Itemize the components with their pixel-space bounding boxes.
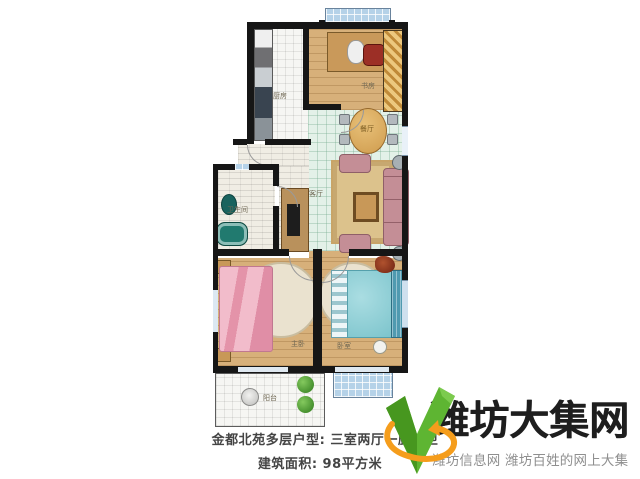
dining-chair bbox=[339, 134, 350, 145]
kitchen-counter bbox=[254, 29, 273, 141]
room-label-master-bedroom: 主卧 bbox=[291, 340, 305, 348]
balcony-door-window bbox=[238, 367, 288, 372]
bathtub bbox=[216, 222, 248, 246]
screenshot-canvas: 厨房 书房 餐厅 客厅 卫生间 主卧 卧室 阳台 金都北苑多层户型: 三室两厅一… bbox=[0, 0, 640, 479]
bedroom-window bbox=[402, 280, 408, 328]
wall bbox=[213, 249, 289, 256]
wall bbox=[273, 164, 279, 186]
checkmark-icon bbox=[378, 384, 460, 479]
floor-lamp bbox=[373, 340, 387, 354]
wall bbox=[309, 104, 341, 110]
wall bbox=[389, 20, 395, 29]
plant-icon bbox=[297, 376, 314, 393]
bed-master bbox=[219, 266, 273, 352]
wall bbox=[319, 20, 325, 29]
room-label-bedroom: 卧室 bbox=[337, 342, 351, 350]
floor-plan: 厨房 书房 餐厅 客厅 卫生间 主卧 卧室 阳台 bbox=[213, 8, 413, 428]
room-label-balcony: 阳台 bbox=[263, 394, 277, 402]
room-label-living: 客厅 bbox=[309, 190, 323, 198]
tv bbox=[287, 204, 300, 236]
wall bbox=[273, 206, 279, 251]
room-label-kitchen: 厨房 bbox=[273, 92, 287, 100]
dining-chair bbox=[387, 114, 398, 125]
wall bbox=[265, 139, 311, 145]
master-window bbox=[213, 290, 218, 332]
wall bbox=[213, 164, 218, 373]
wall bbox=[247, 22, 407, 29]
wall bbox=[313, 249, 322, 373]
flower-pot bbox=[241, 388, 259, 406]
armchair-red bbox=[363, 44, 385, 66]
bathroom-window bbox=[235, 164, 249, 170]
site-tagline: 潍坊信息网 潍坊百姓的网上大集 bbox=[432, 449, 628, 469]
coffee-table bbox=[353, 192, 379, 222]
room-label-study: 书房 bbox=[361, 82, 375, 90]
wall bbox=[349, 249, 408, 256]
room-label-dining: 餐厅 bbox=[360, 125, 374, 133]
wall bbox=[233, 139, 247, 145]
armchair bbox=[339, 154, 371, 173]
dining-chair bbox=[387, 134, 398, 145]
check-shade bbox=[386, 396, 417, 474]
wall bbox=[247, 22, 254, 144]
bed-second bbox=[347, 270, 393, 338]
bay-window-opening bbox=[335, 367, 389, 372]
room-label-bathroom: 卫生间 bbox=[227, 206, 248, 214]
wall bbox=[303, 22, 309, 110]
plant-icon bbox=[297, 396, 314, 413]
plant-red-icon bbox=[375, 256, 395, 273]
living-window bbox=[402, 126, 408, 156]
